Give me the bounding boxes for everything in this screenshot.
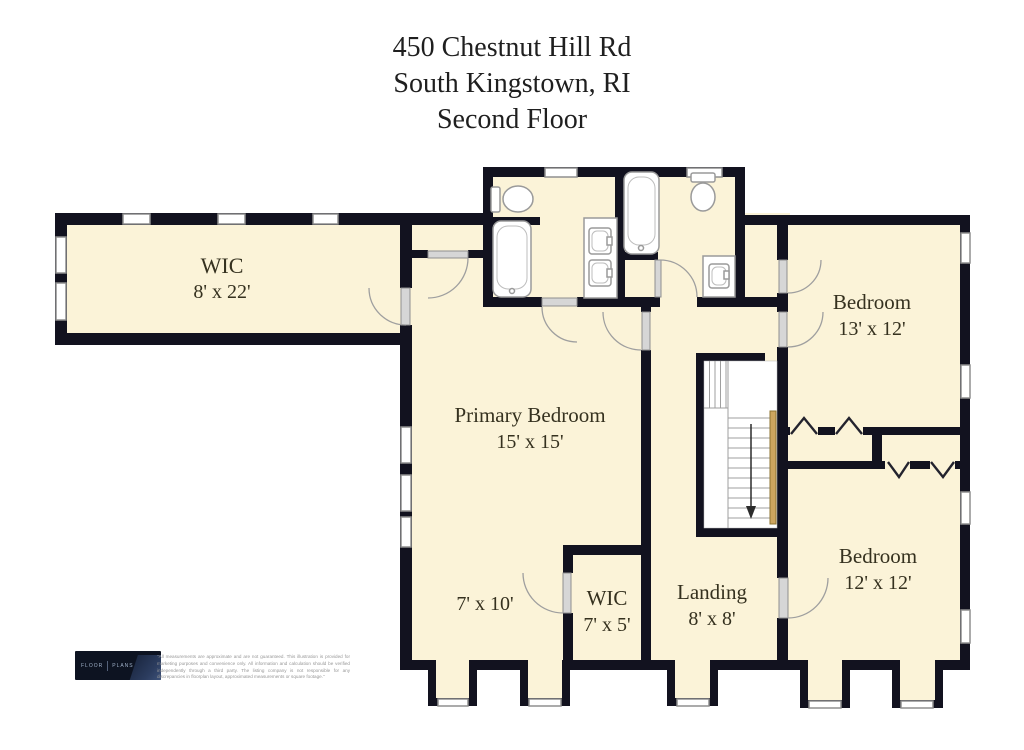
- bathtub: [493, 221, 531, 297]
- room-label-wic-small: WIC 7' x 5': [583, 585, 630, 639]
- stair-railing: [770, 411, 776, 524]
- room-label-landing: Landing 8' x 8': [677, 579, 747, 633]
- floorplan-drawing: [0, 0, 1024, 750]
- logo-text-left: FLOOR: [81, 663, 103, 669]
- room-label-alcove-dims: 7' x 10': [456, 591, 513, 618]
- bathtub: [624, 172, 659, 254]
- floorplan-page: 450 Chestnut Hill Rd South Kingstown, RI…: [0, 0, 1024, 750]
- room-label-wic-large: WIC 8' x 22': [193, 252, 250, 306]
- toilet: [691, 173, 715, 211]
- sink-vanity: [703, 256, 735, 297]
- logo-text-right: PLANS: [112, 663, 133, 669]
- logo-badge: FLOOR PLANS: [75, 651, 161, 680]
- toilet: [491, 186, 533, 212]
- room-label-bedroom-bottom: Bedroom 12' x 12': [839, 543, 917, 597]
- staircase: [704, 361, 777, 528]
- room-label-bedroom-top: Bedroom 13' x 12': [833, 289, 911, 343]
- logo-divider: [107, 661, 108, 671]
- disclaimer-text: "All measurements are approximate and ar…: [157, 654, 350, 681]
- room-label-primary-bedroom: Primary Bedroom 15' x 15': [454, 402, 605, 456]
- sink-vanity-double: [584, 218, 617, 298]
